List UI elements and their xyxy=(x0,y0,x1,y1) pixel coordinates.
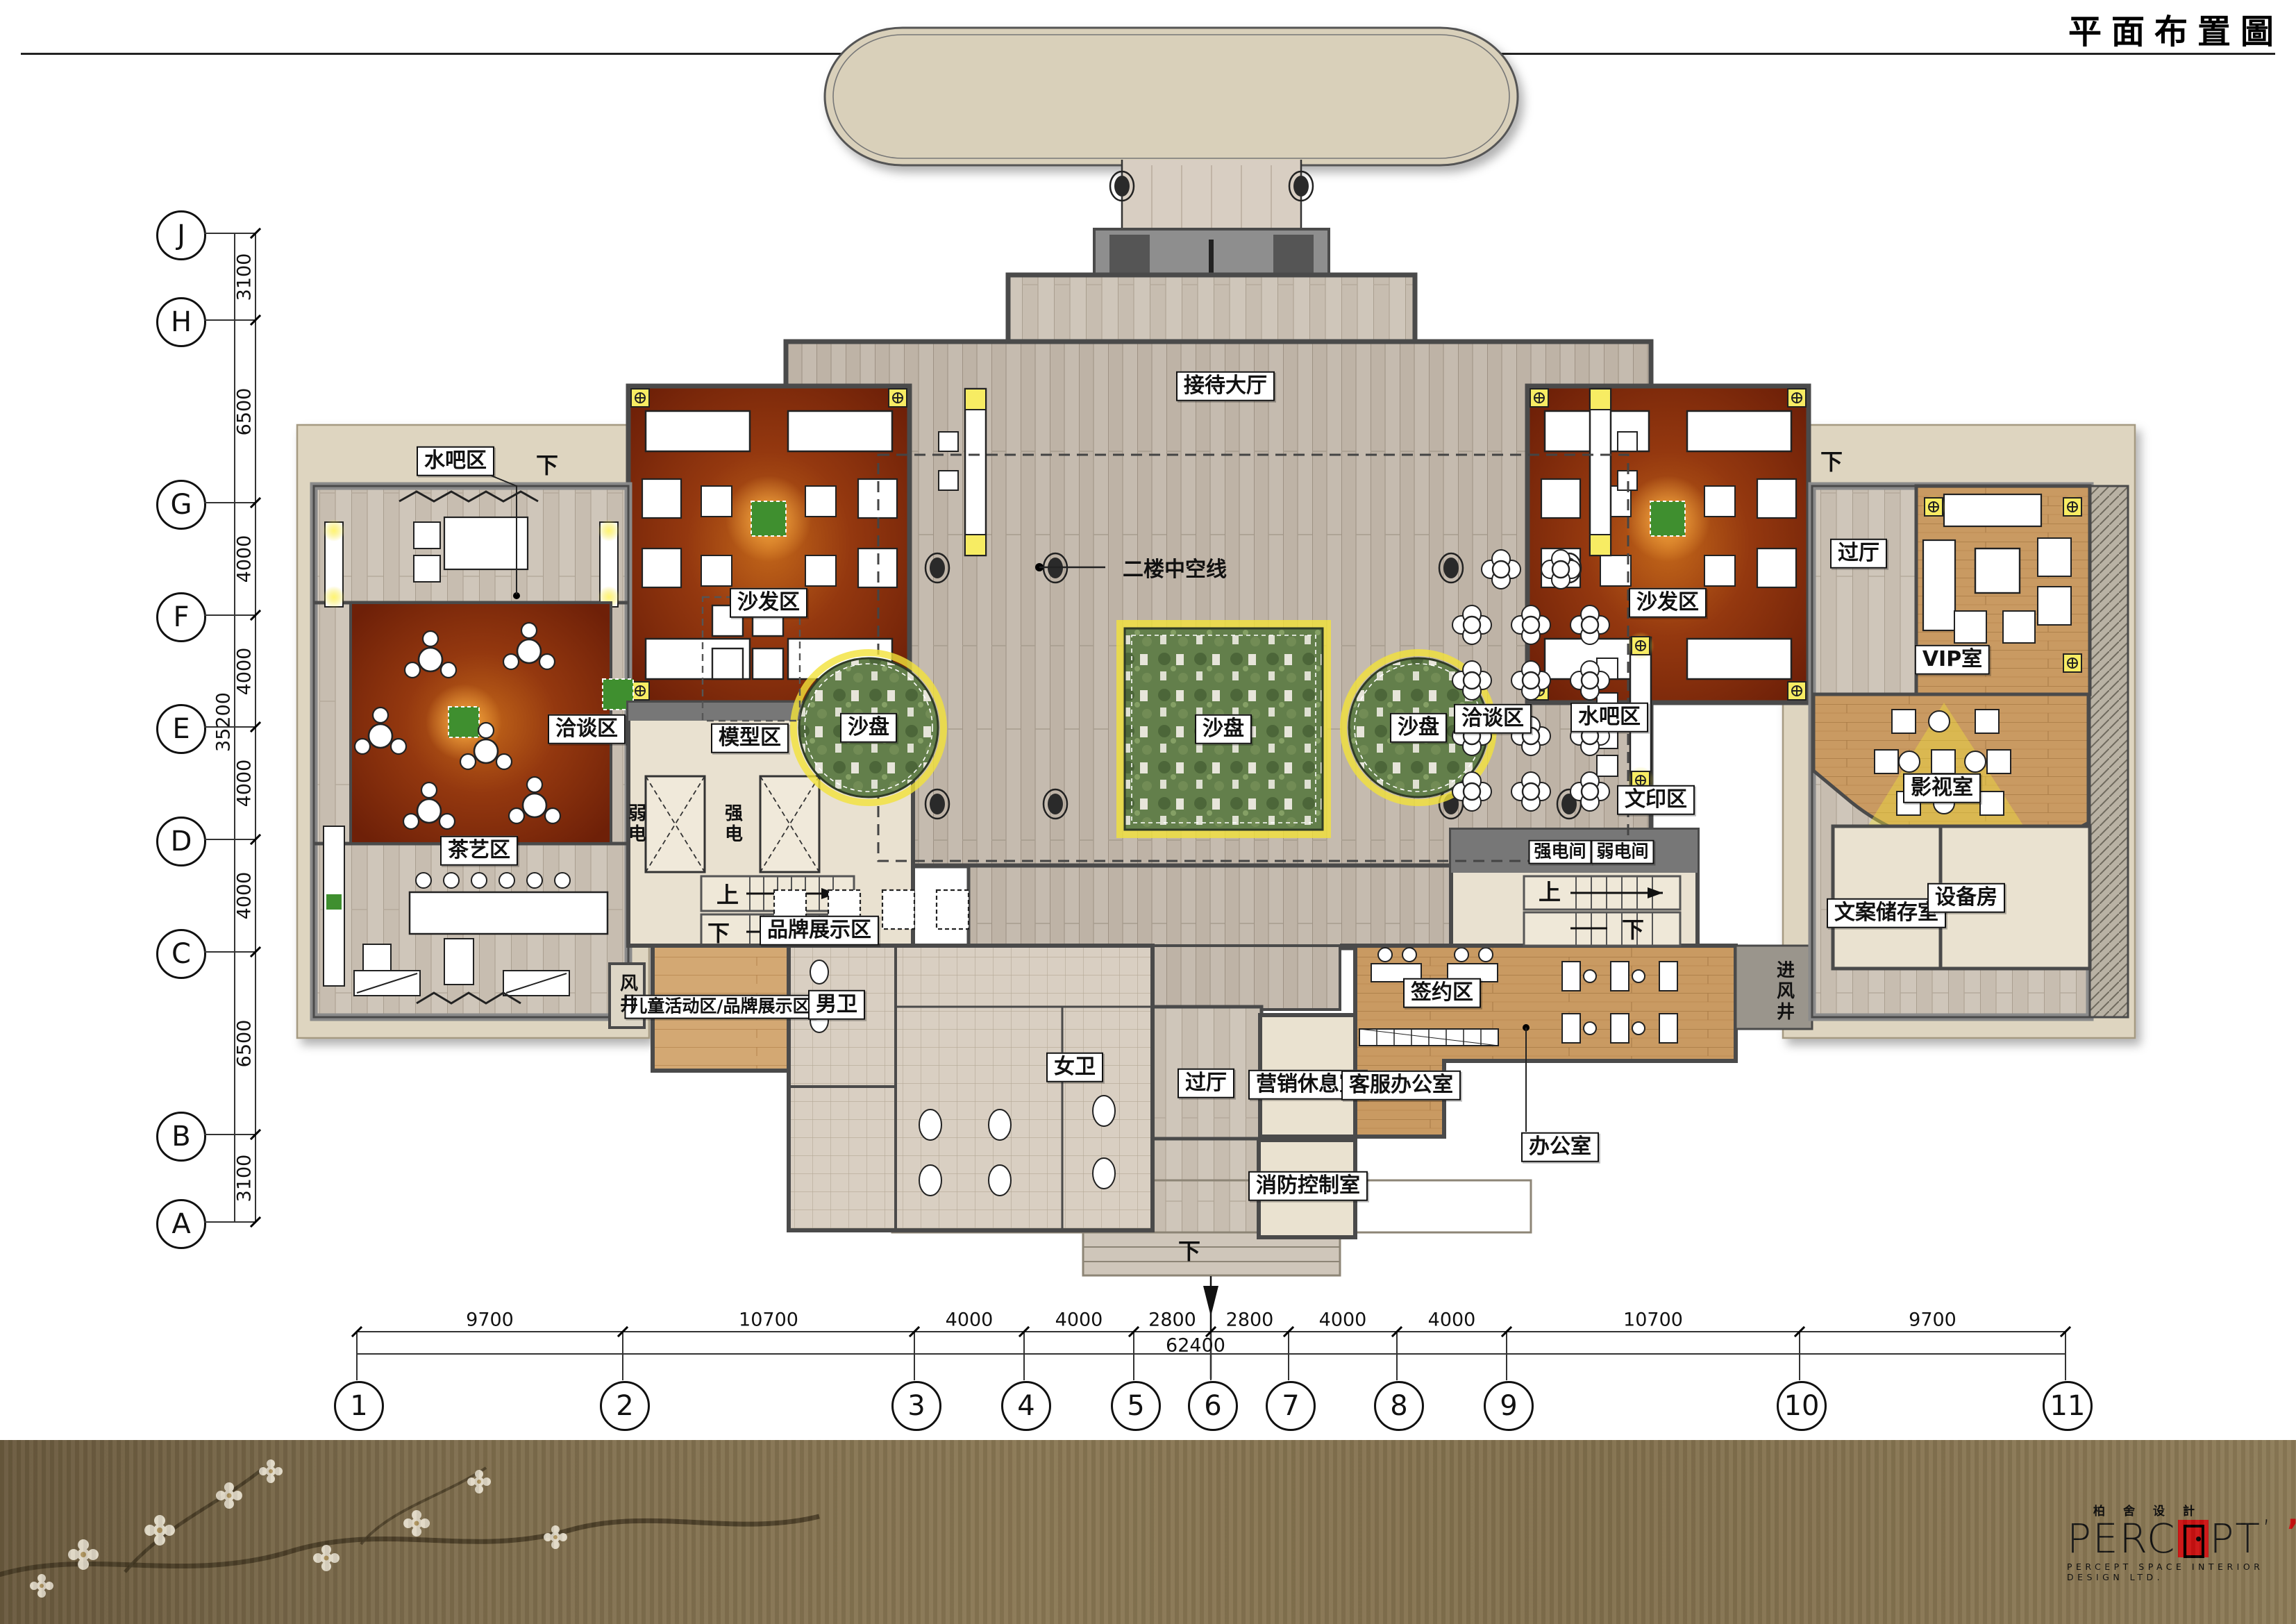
col-bubble-9: 9 xyxy=(1484,1381,1534,1431)
col-bubble-10: 10 xyxy=(1777,1381,1827,1431)
room-label-mens-wc: 男卫 xyxy=(808,990,865,1020)
room-label-fire-control: 消防控制室 xyxy=(1248,1171,1368,1201)
row-dim-5: 4000 xyxy=(234,872,255,920)
room-label-weak-elec-room: 弱电间 xyxy=(1591,840,1654,864)
row-bubble-E: E xyxy=(156,704,206,754)
col-bubble-7: 7 xyxy=(1266,1381,1316,1431)
room-label-equipment-room: 设备房 xyxy=(1927,883,2005,913)
row-dim-3: 4000 xyxy=(234,647,255,695)
room-label-office: 办公室 xyxy=(1521,1132,1599,1162)
direction-marker-up-stair-left: 上 xyxy=(717,878,739,910)
col-leader-7 xyxy=(1288,1332,1289,1380)
row-bubble-D: D xyxy=(156,817,206,867)
room-label-hallway-right-top: 过厅 xyxy=(1830,539,1887,569)
row-leader-H xyxy=(204,319,255,321)
decorative-band: 柏舍设計, PERCPT’ PERCEPT SPACE INTERIOR DES… xyxy=(0,1440,2296,1624)
col-dim-total: 62400 xyxy=(1166,1335,1225,1357)
col-dim-7: 4000 xyxy=(1428,1309,1476,1331)
row-dim-0: 3100 xyxy=(234,253,255,301)
room-label-cs-office: 客服办公室 xyxy=(1341,1071,1461,1100)
col-dim-8: 10700 xyxy=(1623,1309,1683,1331)
direction-marker-down-stair-right: 下 xyxy=(1622,912,1644,944)
col-dim-6: 4000 xyxy=(1319,1309,1367,1331)
room-label-reception-hall: 接待大厅 xyxy=(1176,371,1275,401)
row-bubble-H: H xyxy=(156,297,206,347)
room-label-weak-elec: 弱电 xyxy=(623,803,649,845)
room-label-sofa-left: 沙发区 xyxy=(730,588,807,618)
col-leader-1 xyxy=(356,1332,358,1380)
col-dim-5: 2800 xyxy=(1226,1309,1274,1331)
room-label-vip-room: VIP室 xyxy=(1915,645,1990,675)
row-leader-F xyxy=(204,614,255,616)
col-leader-9 xyxy=(1506,1332,1507,1380)
logo-subtitle: PERCEPT SPACE INTERIOR DESIGN LTD. xyxy=(2067,1562,2275,1582)
direction-marker-down-entrance: 下 xyxy=(1178,1234,1200,1266)
row-leader-B xyxy=(204,1134,255,1135)
room-label-video-room: 影视室 xyxy=(1903,773,1981,803)
room-label-sand-table-center: 沙盘 xyxy=(1195,714,1252,744)
col-bubble-6: 6 xyxy=(1188,1381,1238,1431)
row-bubble-J: J xyxy=(156,210,206,260)
room-label-print-area: 文印区 xyxy=(1617,785,1695,815)
row-bubble-C: C xyxy=(156,929,206,979)
room-label-sand-table-left: 沙盘 xyxy=(840,713,897,743)
col-leader-8 xyxy=(1396,1332,1398,1380)
row-leader-G xyxy=(204,502,255,503)
room-label-kids-brand-area: 儿童活动区/品牌展示区 xyxy=(624,995,815,1019)
col-dim-2: 4000 xyxy=(946,1309,994,1331)
plum-blossom-art xyxy=(0,1440,833,1624)
col-dim-0: 9700 xyxy=(466,1309,514,1331)
room-label-model-area: 模型区 xyxy=(711,723,789,753)
col-leader-3 xyxy=(914,1332,915,1380)
room-label-second-floor-void: 二楼中空线 xyxy=(1123,552,1227,583)
row-bubble-F: F xyxy=(156,592,206,642)
row-bubble-B: B xyxy=(156,1112,206,1162)
room-label-strong-elec-room: 强电间 xyxy=(1528,840,1591,864)
col-bubble-8: 8 xyxy=(1374,1381,1424,1431)
direction-marker-down-top-left: 下 xyxy=(536,448,558,480)
col-dim-3: 4000 xyxy=(1055,1309,1103,1331)
col-leader-11 xyxy=(2065,1332,2066,1380)
page: 平面布置圖 xyxy=(0,0,2296,1624)
room-label-signing-area: 签约区 xyxy=(1403,978,1481,1008)
col-bubble-5: 5 xyxy=(1111,1381,1161,1431)
row-dim-total: 35200 xyxy=(213,692,235,752)
logo-cjk-text: 柏舍设計, xyxy=(2093,1501,2275,1518)
row-leader-D xyxy=(204,839,255,840)
logo-red-comma: , xyxy=(2287,1497,2296,1532)
col-bubble-2: 2 xyxy=(600,1381,650,1431)
room-label-wind-shaft: 风井 xyxy=(615,973,641,1015)
col-dim-1: 10700 xyxy=(739,1309,798,1331)
row-dim-2: 4000 xyxy=(234,535,255,583)
col-bubble-4: 4 xyxy=(1001,1381,1051,1431)
room-label-water-bar-right: 水吧区 xyxy=(1570,703,1648,733)
room-label-sofa-right: 沙发区 xyxy=(1629,588,1707,618)
row-dim-1: 6500 xyxy=(234,387,255,435)
room-label-sand-table-right: 沙盘 xyxy=(1390,713,1447,743)
room-label-brand-display: 品牌展示区 xyxy=(760,916,879,946)
col-dim-9: 9700 xyxy=(1909,1309,1956,1331)
room-label-womens-wc: 女卫 xyxy=(1046,1053,1103,1082)
room-label-strong-elec: 强电 xyxy=(720,803,746,845)
col-leader-4 xyxy=(1023,1332,1025,1380)
col-bubble-11: 11 xyxy=(2043,1381,2093,1431)
logo-red-e-block xyxy=(2178,1520,2209,1557)
col-leader-2 xyxy=(622,1332,623,1380)
col-bubble-1: 1 xyxy=(334,1381,384,1431)
row-bubble-A: A xyxy=(156,1199,206,1249)
row-leader-C xyxy=(204,951,255,953)
room-label-negotiation-right: 洽谈区 xyxy=(1454,704,1532,734)
col-leader-10 xyxy=(1799,1332,1800,1380)
room-label-air-intake-shaft: 进风井 xyxy=(1772,960,1798,1023)
room-label-tea-area: 茶艺区 xyxy=(440,836,518,866)
col-dim-4: 2800 xyxy=(1148,1309,1196,1331)
direction-marker-up-stair-right: 上 xyxy=(1539,875,1561,907)
col-leader-5 xyxy=(1133,1332,1134,1380)
room-label-water-bar-left: 水吧区 xyxy=(417,446,494,476)
direction-marker-down-stair-left: 下 xyxy=(707,916,730,948)
row-dim-4: 4000 xyxy=(234,760,255,807)
room-label-hallway-bottom: 过厅 xyxy=(1178,1069,1234,1098)
percept-logo: 柏舍设計, PERCPT’ PERCEPT SPACE INTERIOR DES… xyxy=(2067,1501,2275,1582)
row-bubble-G: G xyxy=(156,480,206,530)
direction-marker-down-top-right: 下 xyxy=(1820,444,1843,476)
logo-wordmark: PERCPT’ xyxy=(2067,1518,2275,1559)
col-bubble-3: 3 xyxy=(891,1381,941,1431)
room-label-negotiation-left: 洽谈区 xyxy=(548,714,626,744)
row-leader-J xyxy=(204,233,255,234)
row-dim-7: 3100 xyxy=(234,1155,255,1203)
row-dim-6: 6500 xyxy=(234,1019,255,1067)
floor-plan-drawing xyxy=(0,0,2296,1624)
row-leader-A xyxy=(204,1221,255,1223)
